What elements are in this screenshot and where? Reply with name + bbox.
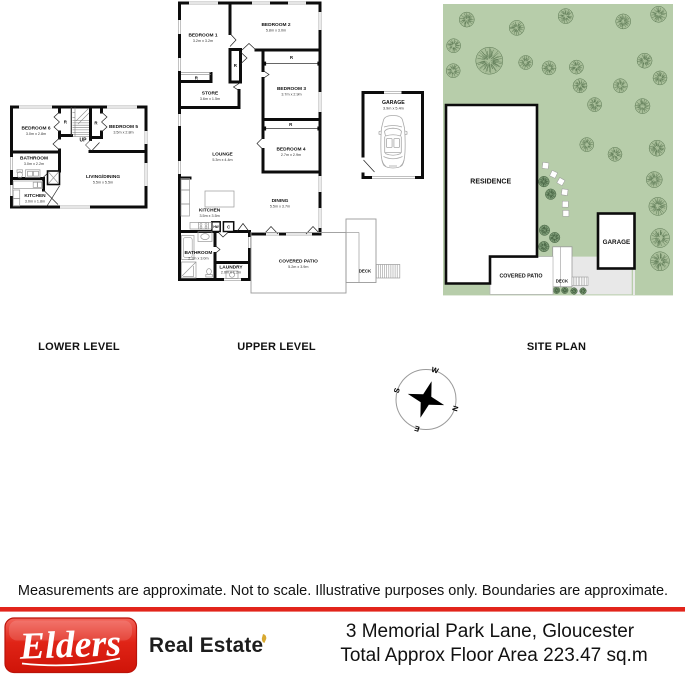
svg-text:UPPER LEVEL: UPPER LEVEL xyxy=(237,341,316,353)
svg-text:2.7m x 2.9m: 2.7m x 2.9m xyxy=(281,153,301,157)
svg-text:5.5m x 3.7m: 5.5m x 3.7m xyxy=(270,205,290,209)
svg-text:Total Approx Floor Area 223.47: Total Approx Floor Area 223.47 sq.m xyxy=(340,645,647,666)
svg-text:Real Estate: Real Estate xyxy=(149,634,263,657)
svg-text:GARAGE: GARAGE xyxy=(382,100,405,106)
svg-text:3.2m x 3.2m: 3.2m x 3.2m xyxy=(193,39,213,43)
svg-text:BEDROOM 3: BEDROOM 3 xyxy=(277,86,306,92)
svg-text:BEDROOM 5: BEDROOM 5 xyxy=(109,124,138,130)
svg-text:3.0m x 2.2m: 3.0m x 2.2m xyxy=(24,162,44,166)
svg-text:GARAGE: GARAGE xyxy=(603,239,631,246)
svg-text:3.5m x 2.8m: 3.5m x 2.8m xyxy=(113,131,133,135)
svg-text:DECK: DECK xyxy=(556,278,569,283)
svg-text:BATHROOM: BATHROOM xyxy=(20,156,48,162)
svg-text:3.5m x 3.5m: 3.5m x 3.5m xyxy=(199,214,219,218)
svg-text:3.7m x 2.9m: 3.7m x 2.9m xyxy=(281,93,301,97)
svg-text:Measurements are approximate.: Measurements are approximate. Not to sca… xyxy=(18,583,668,599)
svg-text:3 Memorial Park Lane, Gloucest: 3 Memorial Park Lane, Gloucester xyxy=(346,621,635,642)
svg-text:5.5m x 5.5m: 5.5m x 5.5m xyxy=(93,181,113,185)
svg-text:BEDROOM 1: BEDROOM 1 xyxy=(188,33,217,39)
svg-text:STORE: STORE xyxy=(202,91,219,97)
svg-text:5.2m x 3.9m: 5.2m x 3.9m xyxy=(288,265,308,269)
svg-text:DECK: DECK xyxy=(359,269,372,274)
svg-text:BEDROOM 6: BEDROOM 6 xyxy=(21,126,50,132)
svg-text:BEDROOM 2: BEDROOM 2 xyxy=(261,22,290,28)
svg-text:3.0m x 2.8m: 3.0m x 2.8m xyxy=(26,132,46,136)
svg-text:BATHROOM: BATHROOM xyxy=(184,250,212,256)
svg-text:UP: UP xyxy=(80,138,88,144)
svg-text:KITCHEN: KITCHEN xyxy=(199,208,221,214)
svg-text:LOWER LEVEL: LOWER LEVEL xyxy=(38,341,120,353)
svg-text:LIVING/DINING: LIVING/DINING xyxy=(86,174,120,180)
svg-text:COVERED PATIO: COVERED PATIO xyxy=(279,259,318,265)
svg-text:RESIDENCE: RESIDENCE xyxy=(470,178,511,185)
svg-text:DINING: DINING xyxy=(272,198,289,204)
svg-text:3.9m x 5.4m: 3.9m x 5.4m xyxy=(383,106,404,110)
svg-text:5.8m x 3.0m: 5.8m x 3.0m xyxy=(266,29,286,33)
svg-text:LOUNGE: LOUNGE xyxy=(212,152,233,158)
svg-text:SITE PLAN: SITE PLAN xyxy=(527,341,586,353)
svg-text:5.3m x 4.4m: 5.3m x 4.4m xyxy=(212,158,232,162)
svg-text:2.0m x 1.2m: 2.0m x 1.2m xyxy=(221,270,241,274)
svg-text:HW: HW xyxy=(213,225,218,229)
svg-text:C: C xyxy=(227,224,230,229)
svg-text:3.6m x 1.5m: 3.6m x 1.5m xyxy=(200,97,220,101)
svg-text:COVERED PATIO: COVERED PATIO xyxy=(499,273,542,279)
svg-text:2.2m x 3.0m: 2.2m x 3.0m xyxy=(188,257,208,261)
svg-text:3.0m x 1.8m: 3.0m x 1.8m xyxy=(25,200,45,204)
svg-text:KITCHEN: KITCHEN xyxy=(24,193,46,199)
svg-text:BEDROOM 4: BEDROOM 4 xyxy=(276,147,305,153)
